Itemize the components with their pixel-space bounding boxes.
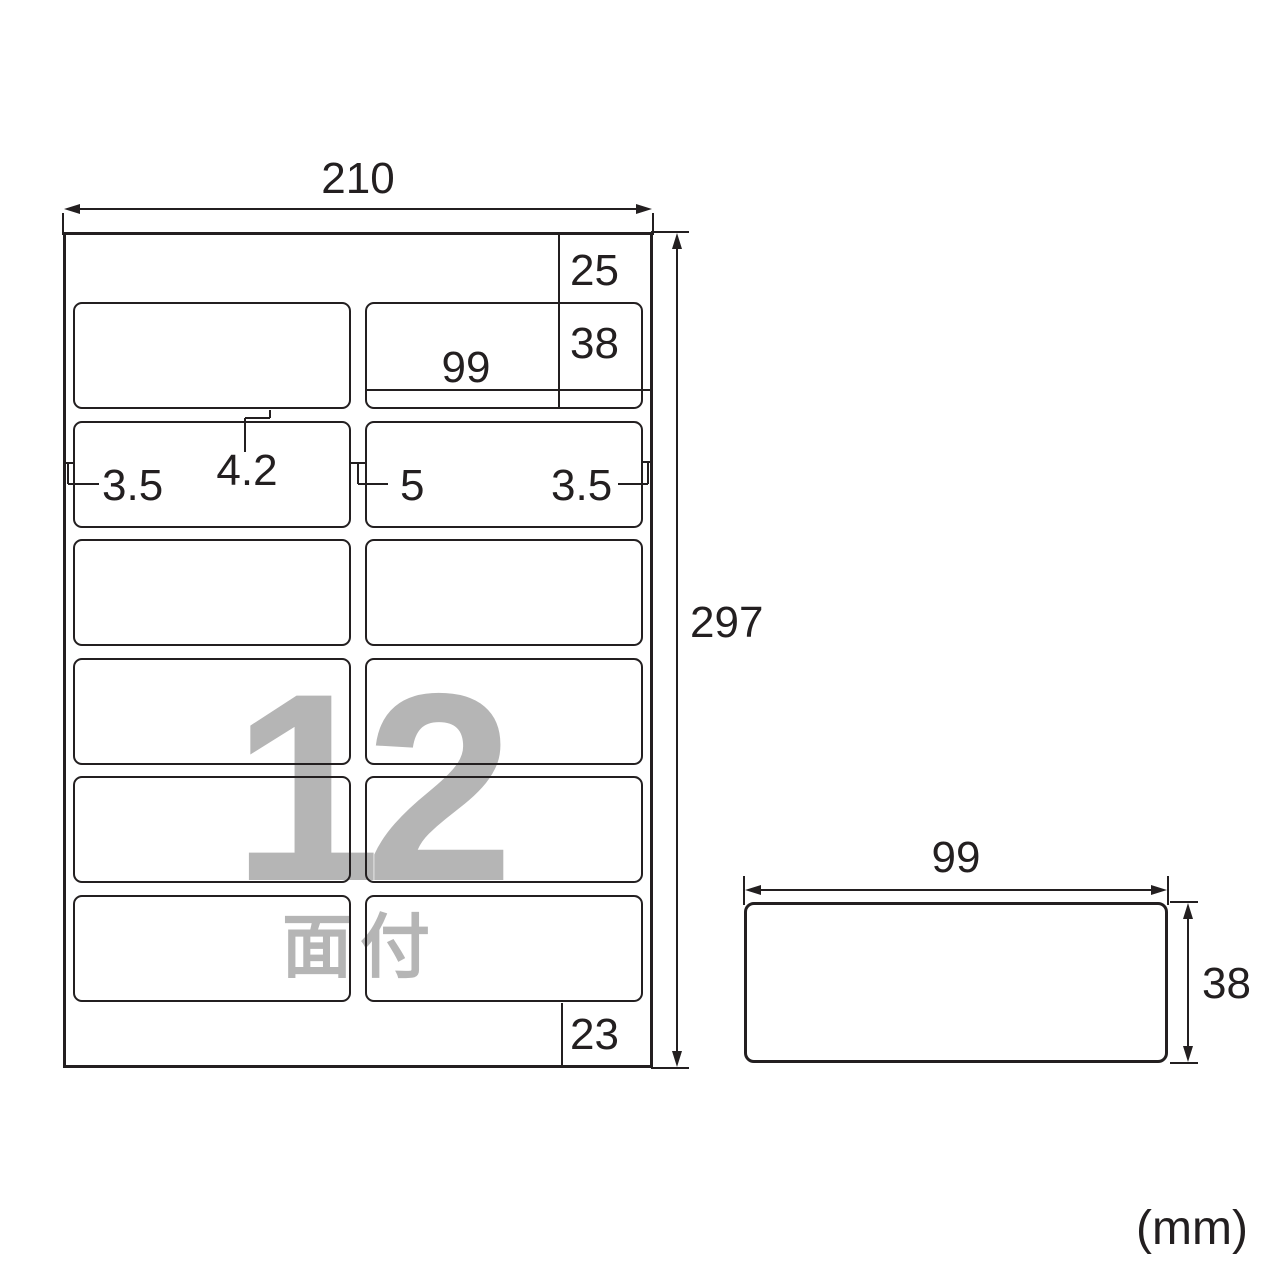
label-sheet-spec-diagram: 12 面付: [0, 0, 1280, 1280]
label-cell: [365, 658, 643, 765]
dim-value-label-width: 99: [430, 346, 502, 390]
dim-value-detail-height: 38: [1202, 962, 1251, 1006]
unit-note: (mm): [1136, 1205, 1248, 1253]
dim-value-top-margin: 25: [570, 249, 619, 293]
label-cell: [73, 539, 351, 646]
label-cell: [365, 539, 643, 646]
dim-value-detail-width: 99: [920, 836, 992, 880]
label-cell: [73, 895, 351, 1002]
dim-value-sheet-height: 297: [690, 601, 763, 645]
dim-value-row-gap: 4.2: [215, 449, 279, 493]
dim-value-col-gap: 5: [400, 464, 424, 508]
dim-value-sheet-width: 210: [300, 157, 416, 201]
single-label-outline: [744, 902, 1168, 1063]
label-cell: [73, 658, 351, 765]
label-cell: [73, 302, 351, 409]
dim-value-bottom-margin: 23: [570, 1013, 619, 1057]
label-cell: [365, 895, 643, 1002]
dim-sheet-width: [63, 204, 653, 235]
label-cell: [365, 776, 643, 883]
label-cell: [73, 776, 351, 883]
dim-value-right-margin: 3.5: [551, 464, 612, 508]
dim-detail-height: [1170, 902, 1198, 1063]
dim-value-left-margin: 3.5: [102, 464, 163, 508]
dim-value-label-height: 38: [570, 322, 619, 366]
dim-sheet-height: [651, 232, 689, 1068]
